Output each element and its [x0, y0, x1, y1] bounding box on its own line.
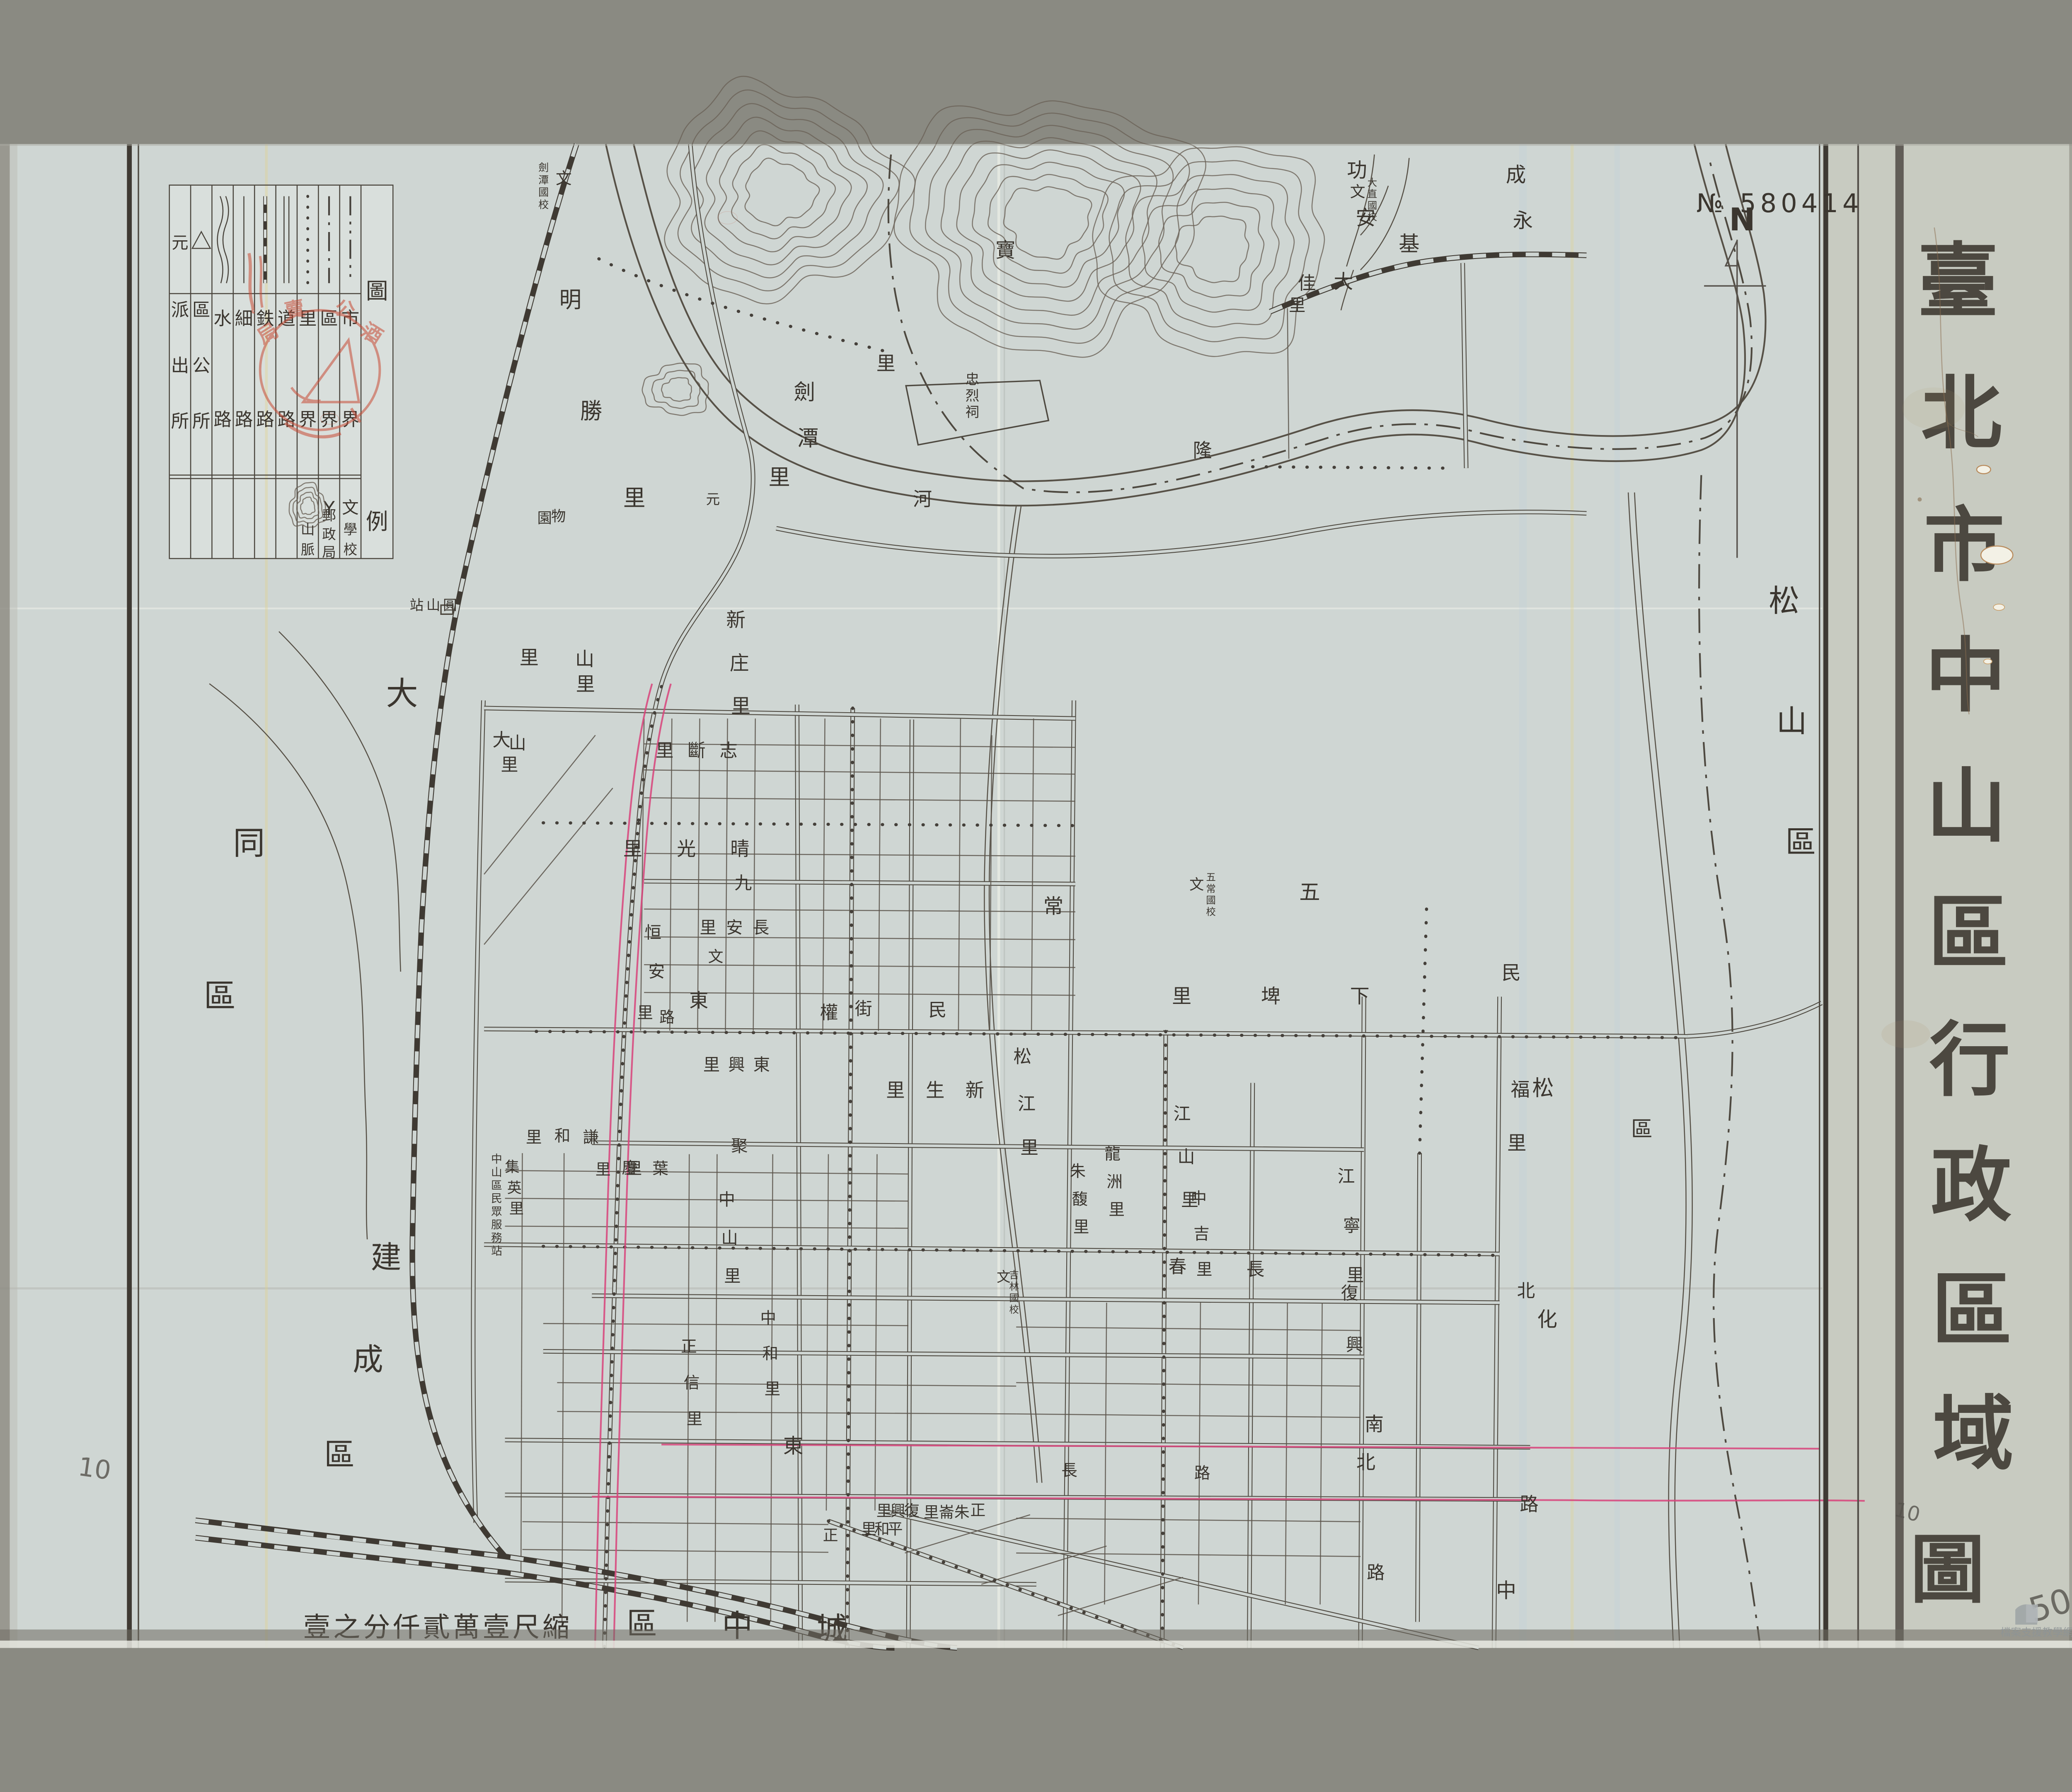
map-label: 馥: [1072, 1190, 1088, 1209]
map-label: 區: [1631, 1117, 1653, 1142]
map-label: 和: [554, 1127, 571, 1146]
legend-entry-label: 路: [235, 409, 253, 430]
map-label: 里: [724, 1267, 741, 1286]
map-label: 江: [1173, 1104, 1191, 1124]
title-char: 區: [1928, 885, 2009, 980]
police-station-symbol: 元: [172, 233, 188, 252]
legend-entry-label: 學: [344, 521, 358, 537]
map-label: 江: [1338, 1166, 1355, 1187]
map-label: 新: [726, 609, 746, 632]
title-char: 行: [1929, 1012, 2010, 1107]
map-label: 文: [556, 169, 572, 188]
map-label: 里: [1020, 1138, 1038, 1158]
map-label: 五常國校: [1206, 871, 1216, 917]
map-canvas: 劍潭國校文明勝里劍潭里寶忠烈祠里河隆基功文大直國校安永成大佳里站山圓物園元里山里…: [0, 0, 2072, 1792]
map-label: 五: [1299, 880, 1320, 904]
map-label: 大: [1334, 271, 1353, 293]
legend-entry-label: 路: [213, 409, 232, 430]
map-label: 里: [1109, 1200, 1125, 1219]
map-label: 寧: [1343, 1216, 1360, 1236]
map-label: 江: [1018, 1094, 1036, 1115]
legend-title: 圖: [366, 278, 388, 304]
map-label: 長: [1247, 1259, 1265, 1280]
legend-entry-label: 水: [213, 309, 232, 329]
map-label: 中: [1496, 1579, 1516, 1603]
map-label: 南: [1365, 1413, 1384, 1435]
map-label: 和: [762, 1345, 779, 1363]
map-label: 松: [1013, 1047, 1031, 1067]
legend-entry-label: 公: [192, 355, 211, 376]
legend-entry-label: 區: [192, 300, 211, 321]
map-label: 復: [1341, 1283, 1358, 1303]
map-label: 區: [204, 978, 236, 1015]
map-label: 大: [386, 675, 418, 713]
legend-entry-label: 校: [344, 542, 358, 558]
title-char: 山: [1926, 759, 2007, 854]
map-label: 里: [769, 465, 790, 490]
map-label: 忠烈祠: [966, 371, 980, 420]
map-label: 里斷志: [656, 740, 752, 761]
li-boundary: [1253, 467, 1444, 468]
map-label: 龍: [1104, 1145, 1121, 1163]
map-label: 權: [820, 1003, 838, 1023]
map-label: 里和平: [861, 1520, 903, 1538]
map-label: 朱: [1070, 1162, 1086, 1181]
map-label: 路: [1367, 1562, 1385, 1583]
scanned-map-page: 劍潭國校文明勝里劍潭里寶忠烈祠里河隆基功文大直國校安永成大佳里站山圓物園元里山里…: [0, 0, 2072, 1792]
map-label: 里: [509, 1200, 524, 1217]
map-label: 北: [1356, 1451, 1375, 1473]
map-label: 民: [1502, 961, 1521, 984]
map-label: 東: [783, 1434, 804, 1458]
map-label: 物: [551, 508, 566, 525]
title-char: 臺: [1917, 233, 1998, 328]
map-label: 洲: [1106, 1173, 1123, 1191]
archive-number: № 580414: [1697, 188, 1863, 218]
map-label: 中: [1191, 1190, 1207, 1208]
map-label: 里: [687, 1410, 703, 1429]
legend-entry-label: 派: [171, 300, 189, 321]
map-label: 東: [689, 989, 708, 1012]
legend-title: 例: [366, 509, 388, 535]
map-label: 謙: [583, 1128, 599, 1147]
map-label: 路: [1194, 1464, 1210, 1483]
map-label: 安: [648, 962, 665, 981]
map-label: 正: [823, 1526, 838, 1544]
map-label: 恒: [645, 923, 661, 942]
map-label: 里: [526, 1128, 542, 1147]
map-label: 勝: [580, 398, 603, 424]
legend-entry-label: 所: [192, 411, 211, 432]
map-label: 里: [1507, 1132, 1526, 1154]
legend-entry-label: 細: [235, 309, 253, 329]
map-label: 永: [1513, 209, 1533, 232]
map-label: 里: [876, 352, 896, 375]
map-label: 春: [1169, 1257, 1187, 1277]
map-label: 山: [509, 733, 526, 753]
map-label: 九: [734, 873, 752, 893]
map-label: 庄: [730, 652, 749, 675]
page-number-left: 10: [76, 1451, 113, 1486]
map-label: 站山圓: [410, 597, 460, 613]
map-label: 北: [1517, 1281, 1535, 1302]
map-label: 山: [1777, 704, 1807, 739]
legend-entry-label: 所: [171, 411, 189, 432]
legend-entry-label: 出: [171, 355, 189, 376]
title-char: 區: [1932, 1262, 2012, 1357]
map-label: 區: [1785, 825, 1816, 860]
title-char: 政: [1931, 1137, 2011, 1232]
map-label: 文: [997, 1269, 1011, 1285]
map-label: 大: [492, 730, 511, 751]
map-label: 正: [970, 1502, 985, 1519]
map-label: 路: [1520, 1493, 1538, 1515]
map-label: 文: [1350, 183, 1365, 201]
map-label: 聚: [731, 1137, 748, 1156]
legend-entry-label: 政: [322, 526, 336, 542]
map-label: 民: [929, 1000, 947, 1021]
map-label: 福: [1511, 1078, 1530, 1100]
map-label: 文: [1189, 876, 1204, 893]
map-label: 松: [1532, 1076, 1554, 1101]
title-char: 市: [1924, 498, 2004, 592]
map-label: 功: [1347, 159, 1367, 182]
map-label: 成: [1506, 163, 1526, 186]
map-label: 山: [721, 1229, 738, 1248]
map-label: 區: [324, 1437, 355, 1473]
map-label: 元: [706, 491, 720, 507]
map-label: 街: [855, 999, 872, 1019]
legend-entry-label: 路: [256, 409, 274, 430]
map-label: 佳: [1298, 273, 1316, 294]
map-label: 建: [371, 1240, 402, 1275]
legend-entry-label: 局: [322, 544, 336, 561]
map-label: 同: [233, 825, 265, 862]
map-label: 里: [1346, 1265, 1364, 1285]
map-label: 松: [1769, 583, 1799, 619]
map-label: 長: [1061, 1461, 1077, 1480]
map-label: 里興東: [703, 1055, 778, 1074]
title-char: 域: [1933, 1386, 2014, 1481]
map-label: 文: [708, 948, 724, 966]
map-label: 安: [1356, 206, 1376, 230]
map-label: 隆: [1193, 439, 1212, 462]
map-label: 里光晴: [623, 838, 784, 860]
map-label: 里: [501, 755, 518, 775]
map-label: 里: [637, 1004, 653, 1022]
map-label: 基: [1399, 232, 1419, 256]
map-label: 中: [760, 1309, 777, 1328]
map-label: 慶: [622, 1159, 638, 1178]
map-label: 山: [1178, 1147, 1195, 1167]
map-label: 里: [623, 485, 646, 511]
map-label: 里崙朱: [924, 1504, 970, 1521]
map-label: 里埤下: [1172, 985, 1439, 1008]
watermark-text: 檔案支援教學網: [2000, 1626, 2072, 1638]
map-label: 里: [595, 1161, 611, 1178]
map-label: 園: [537, 510, 552, 527]
school-symbol: 文: [342, 498, 358, 518]
map-label: 興: [1346, 1335, 1363, 1355]
map-label: 山: [575, 648, 594, 670]
map-label: 里: [1196, 1260, 1213, 1279]
legend-entry-label: 山: [301, 521, 315, 537]
map-label: 劍: [794, 380, 815, 405]
map-label: 里: [1073, 1218, 1089, 1236]
map-label: 里安長: [700, 919, 779, 938]
map-label: 吉: [1193, 1225, 1210, 1243]
legend-entry-label: 界: [341, 409, 360, 430]
map-label: 河: [913, 488, 932, 510]
map-label: 常: [1043, 895, 1064, 918]
map-label: 里: [765, 1380, 781, 1399]
map-label: 吉林國校: [1009, 1269, 1019, 1315]
map-label: 化: [1537, 1308, 1557, 1331]
map-label: 明: [559, 287, 581, 313]
map-label: 里興復: [876, 1502, 919, 1520]
map-label: 潭: [797, 426, 818, 451]
map-label: 成: [353, 1342, 383, 1378]
map-label: 信: [684, 1374, 700, 1392]
map-label: 里: [731, 695, 750, 718]
map-label: 英: [507, 1180, 522, 1197]
legend-entry-label: 脈: [301, 542, 315, 558]
map-label: 劍潭國校: [538, 162, 549, 210]
title-char: 圖: [1910, 1526, 1985, 1613]
map-label: 寶: [995, 239, 1016, 262]
map-label: 里: [520, 646, 539, 669]
map-label: 中山區民眾服務站: [491, 1153, 502, 1258]
map-label: 里: [576, 673, 595, 695]
map-label: 里: [1289, 296, 1305, 315]
map-label: 中: [719, 1190, 735, 1209]
map-label: 正: [681, 1337, 697, 1356]
map-label: 路: [659, 1008, 675, 1026]
map-label: 里生新: [886, 1079, 1005, 1101]
map-label: 集: [505, 1158, 520, 1175]
